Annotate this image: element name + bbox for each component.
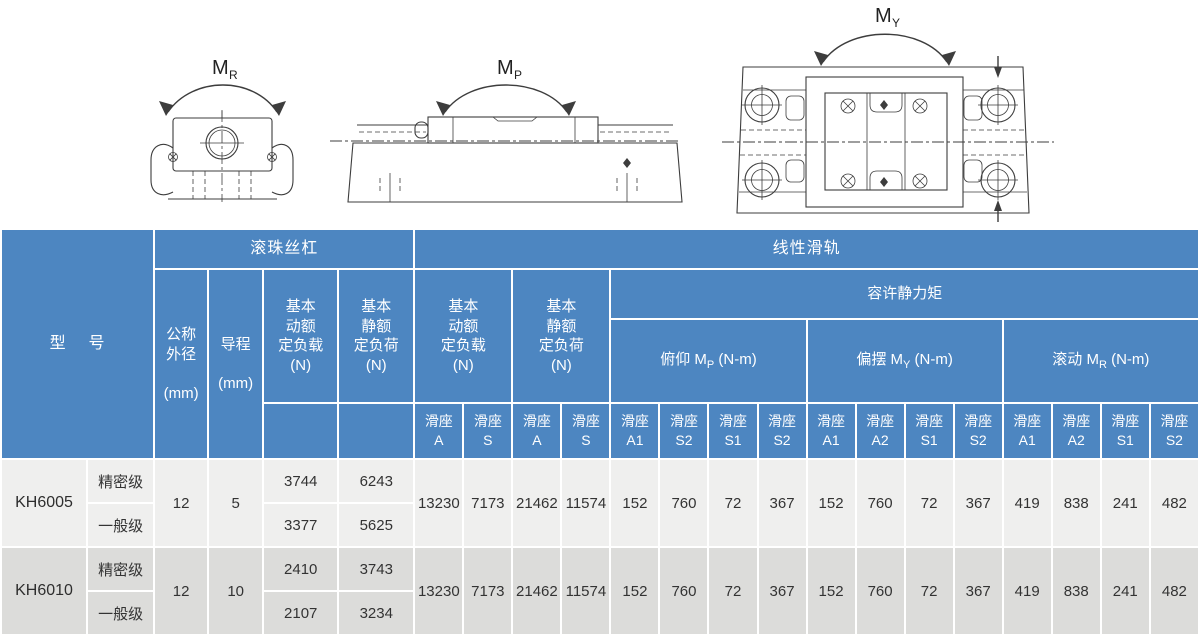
header-seat: 滑座 S2 [758,403,807,459]
cell-value: 367 [758,459,807,547]
svg-text:M: M [497,57,514,79]
cell-value: 152 [807,547,856,635]
pitch-moment-diagram: M P [330,48,680,208]
cell-value: 2410 [263,547,338,591]
cell-value: 3377 [263,503,338,547]
cell-model: KH6005 [1,459,87,547]
cell-value: 5625 [338,503,414,547]
svg-text:M: M [212,57,229,79]
cell-value: 241 [1101,459,1150,547]
header-roll-moment: 滚动 MR (N-m) [1003,319,1199,403]
pitch-arc-arrow [436,85,576,116]
cell-value: 3234 [338,591,414,635]
header-seat: 滑座 A1 [610,403,659,459]
header-lg-static-load: 基本 静额 定负荷 (N) [512,269,610,403]
rail-bolt-icon [742,85,1018,200]
cell-value: 7173 [463,547,512,635]
header-spacer [338,403,414,459]
cell-value: 152 [807,459,856,547]
yaw-moment-diagram: M Y [718,0,1058,228]
header-yaw-moment: 偏摆 MY (N-m) [807,319,1003,403]
cell-value: 13230 [414,547,463,635]
header-bs-static-load: 基本 静额 定负荷 (N) [338,269,414,403]
carriage-side-view [415,117,598,143]
cell-lead: 10 [208,547,263,635]
roll-arc-arrow [159,85,286,116]
header-seat: 滑座 S2 [659,403,708,459]
header-nominal-od: 公称 外径 (mm) [154,269,208,459]
header-linear-rail: 线性滑轨 [414,229,1199,269]
cell-value: 13230 [414,459,463,547]
roll-moment-diagram: M R [148,48,303,208]
cell-value: 152 [610,459,659,547]
header-seat: 滑座 S1 [1101,403,1150,459]
cell-value: 11574 [561,459,610,547]
cell-value: 21462 [512,459,561,547]
cell-value: 11574 [561,547,610,635]
yaw-moment-label: M Y [875,5,900,30]
svg-text:R: R [229,68,238,82]
cell-value: 3743 [338,547,414,591]
header-ball-screw: 滚珠丝杠 [154,229,414,269]
cell-value: 482 [1150,459,1199,547]
cell-value: 760 [856,547,905,635]
cell-value: 367 [954,547,1003,635]
svg-text:M: M [875,5,892,27]
header-lg-dynamic-load: 基本 动额 定负载 (N) [414,269,512,403]
cell-grade: 一般级 [87,591,154,635]
cell-value: 3744 [263,459,338,503]
header-seat: 滑座 S2 [1150,403,1199,459]
header-seat: 滑座 A2 [856,403,905,459]
header-seat: 滑座 S [463,403,512,459]
cell-value: 367 [758,547,807,635]
header-seat: 滑座 S1 [905,403,954,459]
header-seat: 滑座 A [512,403,561,459]
header-bs-dynamic-load: 基本 动额 定负载 (N) [263,269,338,403]
datum-point-icon [880,177,888,187]
cell-value: 7173 [463,459,512,547]
header-seat: 滑座 S [561,403,610,459]
spec-sheet: M R [0,0,1200,637]
datum-point-icon [623,158,631,168]
cell-value: 2107 [263,591,338,635]
header-seat: 滑座 S1 [708,403,757,459]
cell-value: 367 [954,459,1003,547]
cell-value: 838 [1052,547,1101,635]
cell-value: 21462 [512,547,561,635]
cell-value: 760 [659,459,708,547]
cell-value: 152 [610,547,659,635]
cell-value: 760 [856,459,905,547]
cell-value: 72 [905,459,954,547]
pitch-moment-label: M P [497,57,522,82]
cell-od: 12 [154,547,208,635]
cell-value: 419 [1003,459,1052,547]
roll-moment-label: M R [212,57,238,82]
header-model: 型 号 [1,229,154,459]
cell-value: 838 [1052,459,1101,547]
cell-value: 760 [659,547,708,635]
rail-side-view [330,125,682,202]
cell-value: 241 [1101,547,1150,635]
header-seat: 滑座 S2 [954,403,1003,459]
svg-text:P: P [514,68,522,82]
cell-grade: 精密级 [87,547,154,591]
cell-grade: 一般级 [87,503,154,547]
yaw-arc-arrow [814,34,956,66]
header-pitch-moment: 俯仰 MP (N-m) [610,319,806,403]
cell-lead: 5 [208,459,263,547]
header-seat: 滑座 A1 [807,403,856,459]
cell-value: 482 [1150,547,1199,635]
cell-value: 72 [905,547,954,635]
cell-value: 419 [1003,547,1052,635]
header-seat: 滑座 A1 [1003,403,1052,459]
header-lead: 导程 (mm) [208,269,263,459]
header-static-moment: 容许静力矩 [610,269,1199,319]
header-spacer [263,403,338,459]
svg-text:Y: Y [892,16,900,30]
cell-value: 72 [708,459,757,547]
spec-table: 型 号 滚珠丝杠 线性滑轨 公称 外径 (mm) 导程 (mm) 基本 动额 定… [0,228,1200,636]
cell-grade: 精密级 [87,459,154,503]
cell-model: KH6010 [1,547,87,635]
header-seat: 滑座 A [414,403,463,459]
header-seat: 滑座 A2 [1052,403,1101,459]
carriage-front-view [169,110,277,202]
cell-value: 72 [708,547,757,635]
datum-point-icon [880,100,888,110]
cell-value: 6243 [338,459,414,503]
cell-od: 12 [154,459,208,547]
